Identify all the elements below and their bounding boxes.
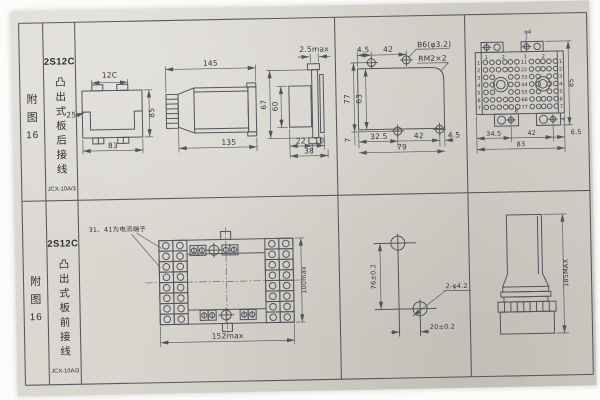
dim-case-front-width: 83 [108,141,118,150]
dim-case-rear-b2: 10 [314,136,324,145]
dim-case-front-top: 12C [102,70,118,79]
dim-cutout-t2: 42 [383,45,393,54]
figure-label-row2: 附 图 16 [24,277,47,323]
dim-case-rear-inner-height: 60 [271,101,280,111]
tb-row-number: 7 [478,106,481,112]
model-label: 2S12C [47,238,78,250]
dim-case-side-bottom: 135 [221,138,236,147]
model-cell-row1: 2S12C 凸出式板后接线 JCX-10A/3 [44,56,77,192]
tb-dim-height: 85 [567,78,575,87]
dim-side-profile-height: 185MAX [562,258,571,287]
line-art: 12C 85 83 25 145 135 [0,0,600,400]
dim-cutout-b3: 4.5 [448,130,461,139]
dim-case-rear-total: 38 [304,146,314,155]
drill-hole-note: 2-φ4.2 [445,282,467,290]
figure-char: 附 [26,95,37,106]
tb-pair-label: 66 [521,97,527,103]
dim-cutout-total: 79 [397,142,407,151]
figure-char: 附 [30,277,41,288]
paper-sheet: 12C 85 83 25 145 135 [0,0,600,400]
tb-dim-total: 83 [517,140,526,148]
tb-row-number: 3 [477,76,480,82]
note-cutout-hole: B6(φ3.2) [417,40,451,50]
tb-dim-edge: 4 [561,117,567,121]
front-panel-note: 31、41为电流端子 [88,224,146,234]
dim-front-panel-height: 100max [300,266,309,294]
dim-case-rear-b1: 22 [296,136,306,145]
tb-dim-b2: 42 [527,129,536,137]
figure-number: 16 [26,131,39,141]
dim-cutout-left: 77 [342,94,351,104]
tb-row-number: 5 [559,89,562,95]
type-code-label: JCX-10A/3 [51,368,79,375]
drawing-drill-plan: 76±0.2 20±0.2 2-φ4.2 [369,233,472,337]
dim-case-side-top: 145 [203,59,218,68]
dim-case-rear-top: 2.5max [299,44,329,54]
note-cutout-thread: RM2×2 [418,54,447,64]
dim-cutout-t1: 4.5 [357,45,370,54]
tb-row-number: 7 [560,104,563,110]
drawing-panel-cutout: B6(φ3.2) RM2×2 4.5 42 77 63 7 32 [341,39,460,153]
tb-pair-label: 55 [521,90,527,96]
tb-pair-label: 22 [521,67,527,73]
description-label: 凸出式板前接线 [58,258,70,360]
dim-cutout-inner: 63 [354,94,363,104]
tb-row-number: 4 [477,83,480,89]
dim-cutout-corner: 7 [343,137,352,142]
drawing-front-panel: 31、41为电流端子 100max 152max [88,221,309,348]
tb-row-number: 5 [477,91,480,97]
tb-row-number: 4 [559,81,562,87]
dim-case-front-height: 85 [147,108,156,118]
dim-drill-horizontal: 20±0.2 [430,323,455,331]
figure-char: 图 [30,295,41,306]
tb-row-number: 1 [559,59,562,65]
tb-row-number: 1 [477,61,480,67]
tb-hole-note: φ4 [524,30,532,36]
tb-dim-b3: 6.5 [571,128,582,136]
drawing-terminal-board: 1 2 1 2 1 2 3 4 5 6 7 1 2 [475,29,582,154]
photographed-catalog-page: 12C 85 83 25 145 135 [0,0,600,400]
dim-case-rear-outer-height: 67 [259,100,268,110]
tb-pair-label: 33 [521,75,527,81]
tb-row-number: 6 [477,98,480,104]
dim-cutout-b1: 32.5 [370,132,388,141]
tb-pair-label: 77 [522,105,528,111]
model-cell-row2: 2S12C 凸出式板前接线 JCX-10A/3 [48,238,81,374]
dim-front-panel-width: 152max [212,331,244,341]
model-label: 2S12C [44,56,75,68]
figure-label-row1: 附 图 16 [21,95,44,141]
figure-char: 图 [27,113,38,124]
type-code-label: JCX-10A/3 [48,186,76,193]
tb-row-number: 6 [559,96,562,102]
drawing-side-profile: 185MAX [496,214,571,334]
figure-number: 16 [30,313,43,323]
drawing-case-side: 145 135 [165,58,257,153]
description-label: 凸出式板后接线 [54,76,66,178]
dim-cutout-b2: 42 [414,131,424,140]
tb-pair-label: 44 [521,82,527,88]
dim-drill-vertical: 76±0.2 [369,264,377,289]
tb-row-number: 2 [559,66,562,72]
tb-dim-b1: 34.5 [486,130,501,138]
drawing-case-rear: 2.5max 67 60 22 10 38 [258,44,332,158]
tb-row-number: 3 [559,74,562,80]
tb-pair-label: 11 [521,60,527,66]
tb-row-number: 2 [477,68,480,74]
drawing-case-front: 12C 85 83 25 [66,70,158,155]
